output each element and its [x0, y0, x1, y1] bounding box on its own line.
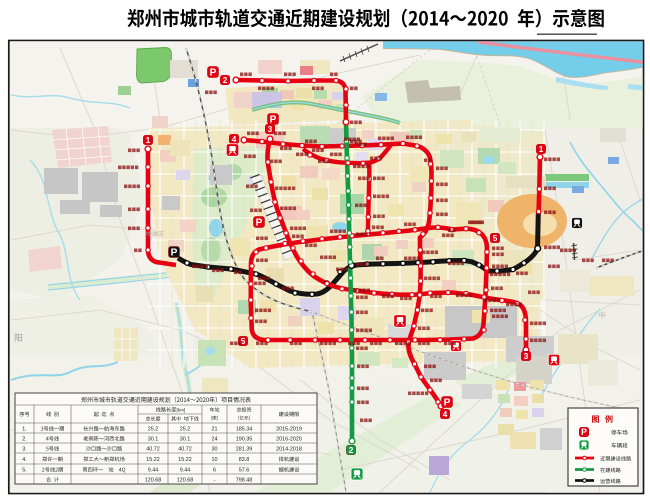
svg-text:120.68: 120.68	[177, 478, 194, 484]
svg-text:15.22: 15.22	[178, 457, 192, 463]
svg-text:1: 1	[539, 145, 544, 154]
svg-text:P: P	[210, 68, 217, 79]
svg-text:2.: 2.	[22, 437, 27, 443]
svg-text:1.: 1.	[22, 427, 27, 433]
svg-text:83.8: 83.8	[239, 457, 250, 463]
svg-text:3: 3	[268, 125, 273, 134]
svg-text:[km]: [km]	[177, 408, 186, 413]
svg-text:2: 2	[349, 446, 354, 455]
svg-text:30.1: 30.1	[148, 437, 159, 443]
svg-text:24: 24	[212, 437, 218, 443]
svg-text:190.35: 190.35	[236, 437, 253, 443]
svg-text:4.: 4.	[22, 457, 27, 463]
svg-text:40.72: 40.72	[146, 447, 160, 453]
svg-text:P: P	[171, 248, 178, 259]
svg-text:25.2: 25.2	[148, 427, 159, 433]
svg-text:2015-2019: 2015-2019	[276, 427, 302, 433]
svg-text:5.: 5.	[22, 468, 27, 474]
svg-text:-: -	[214, 478, 216, 484]
svg-text:3.: 3.	[22, 447, 27, 453]
svg-text:P: P	[256, 218, 263, 229]
svg-text:4: 4	[443, 410, 448, 419]
svg-text:3: 3	[524, 352, 529, 361]
svg-text:2: 2	[223, 76, 228, 85]
svg-text:2016-2020: 2016-2020	[276, 437, 302, 443]
svg-text:4: 4	[232, 135, 237, 144]
svg-text:P: P	[581, 427, 587, 437]
svg-text:10: 10	[212, 457, 218, 463]
svg-text:1: 1	[146, 136, 151, 145]
svg-text:2014-2018: 2014-2018	[276, 447, 302, 453]
svg-text:281.39: 281.39	[236, 447, 253, 453]
svg-text:798.48: 798.48	[236, 478, 253, 484]
svg-text:40.72: 40.72	[178, 447, 192, 453]
svg-text:P: P	[444, 398, 451, 409]
svg-text:5: 5	[493, 234, 498, 243]
svg-text:30: 30	[212, 447, 218, 453]
svg-text:25.2: 25.2	[180, 427, 191, 433]
svg-text:21: 21	[212, 427, 218, 433]
svg-text:9.44: 9.44	[148, 468, 159, 474]
svg-text:6: 6	[213, 468, 216, 474]
svg-text:30.1: 30.1	[180, 437, 191, 443]
svg-text:120.68: 120.68	[145, 478, 162, 484]
svg-text:185.34: 185.34	[236, 427, 253, 433]
svg-text:57.6: 57.6	[239, 468, 250, 474]
svg-text:9.44: 9.44	[180, 468, 191, 474]
svg-text:15.22: 15.22	[146, 457, 160, 463]
